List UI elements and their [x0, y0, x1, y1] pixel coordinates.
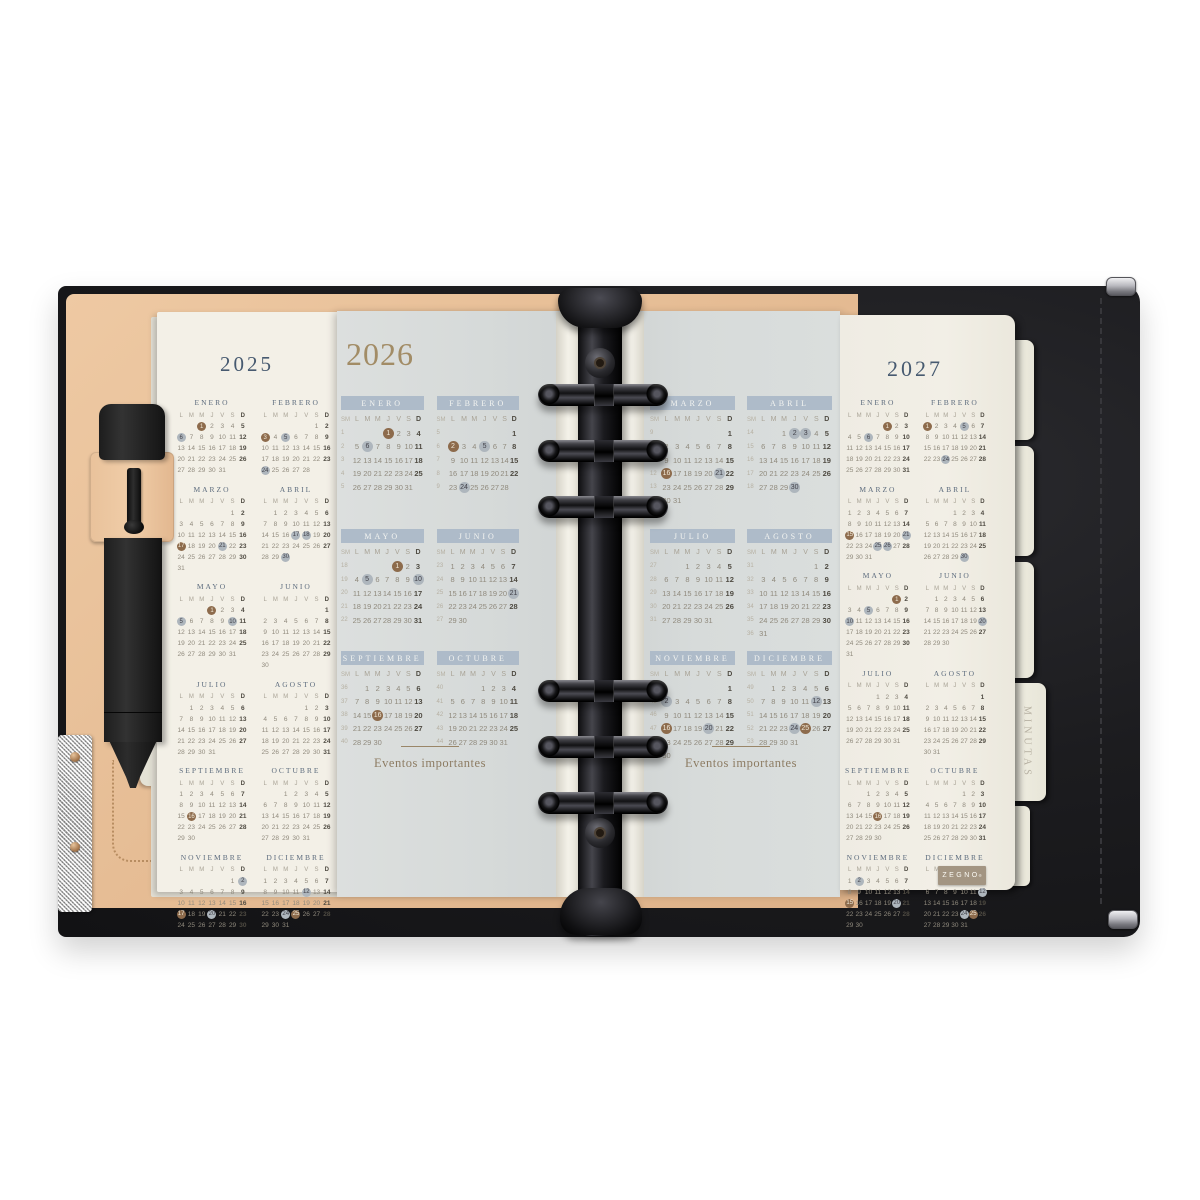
day-cell: 17	[301, 812, 311, 822]
binder-ring[interactable]	[538, 440, 668, 462]
day-cell: 24	[864, 542, 873, 552]
weekday-label: M	[682, 547, 693, 559]
day-cell: 22	[950, 542, 959, 552]
day-cell: 1	[509, 428, 519, 440]
day-cell: 25	[714, 601, 725, 613]
day-cell: 29	[186, 748, 196, 758]
observance-day: 2	[789, 428, 800, 439]
day-cell: 2	[270, 877, 280, 887]
weekday-label: V	[960, 584, 969, 594]
day-cell: 12	[901, 801, 910, 811]
day-cell: 8	[509, 441, 519, 453]
week-number: 21	[341, 601, 352, 613]
day-cell	[238, 564, 248, 574]
day-cell	[932, 693, 941, 703]
weekday-label: M	[186, 595, 196, 605]
day-cell	[238, 748, 248, 758]
day-cell: 18	[291, 899, 301, 909]
weekday-label: L	[845, 779, 854, 789]
day-cell: 2	[821, 561, 832, 573]
day-cell: 23	[488, 723, 498, 735]
day-cell: 18	[873, 531, 882, 541]
day-cell	[779, 628, 790, 640]
weekday-label: M	[932, 779, 941, 789]
day-cell: 7	[373, 441, 383, 453]
week-number: 36	[747, 628, 758, 640]
day-cell: 7	[864, 704, 873, 714]
weekday-label: D	[978, 682, 987, 692]
day-cell: 3	[383, 683, 393, 695]
day-cell: 19	[176, 639, 186, 649]
day-cell	[873, 921, 882, 931]
week-number: 46	[650, 710, 661, 722]
day-cell: 12	[693, 455, 703, 467]
weekday-label: M	[186, 779, 196, 789]
day-cell: 12	[479, 455, 490, 467]
week-number: 14	[747, 428, 758, 440]
day-cell: 17	[176, 910, 186, 920]
month-grid: LMMJVSD123456789101112131415161718192021…	[845, 498, 911, 563]
weekday-label: L	[845, 584, 854, 594]
day-cell	[883, 553, 892, 563]
day-cell: 22	[478, 723, 488, 735]
day-cell: 4	[270, 433, 280, 443]
day-cell: 13	[291, 444, 301, 454]
day-cell: 26	[488, 601, 498, 613]
week-number: 23	[437, 561, 448, 573]
day-cell: 8	[383, 441, 394, 453]
observance-day: 20	[207, 910, 216, 919]
day-cell: 4	[470, 441, 480, 453]
day-cell: 23	[932, 455, 941, 465]
day-cell: 31	[176, 564, 186, 574]
day-cell: 28	[373, 482, 383, 494]
day-cell: 6	[311, 877, 321, 887]
calendar-month-mayo: MAYOLMMJVSD12345678910111213141516171819…	[176, 582, 248, 671]
weekday-label: S	[227, 411, 237, 421]
day-cell: 7	[758, 696, 768, 708]
month-grid: LMMJVSD123456789101112131415161718192021…	[845, 779, 911, 844]
day-cell: 26	[901, 823, 910, 833]
month-name: ABRIL	[923, 485, 987, 494]
day-cell: 10	[260, 444, 270, 454]
day-cell: 6	[362, 441, 373, 453]
weekday-label: S	[227, 779, 237, 789]
day-cell: 31	[281, 921, 291, 931]
day-cell: 24	[800, 468, 811, 480]
month-grid: LMMJVSD123456789101112131415161718192021…	[845, 411, 911, 476]
day-cell: 2	[458, 561, 468, 573]
day-cell: 31	[901, 466, 910, 476]
day-cell: 30	[693, 615, 704, 627]
day-cell: 19	[479, 468, 490, 480]
day-cell: 1	[281, 790, 291, 800]
day-cell: 18	[301, 531, 311, 541]
month-grid: LMMJVSD123456789101112131415161718192021…	[260, 779, 332, 844]
binder-ring[interactable]	[538, 680, 668, 702]
day-cell: 30	[854, 553, 863, 563]
day-cell: 31	[845, 650, 854, 660]
observance-day: 6	[362, 441, 373, 452]
day-cell	[301, 606, 311, 616]
day-cell: 14	[500, 455, 510, 467]
day-cell: 18	[238, 628, 248, 638]
day-cell: 5	[960, 422, 969, 432]
day-cell: 19	[301, 899, 311, 909]
observance-day: 10	[413, 574, 424, 585]
month-grid: LMMJVSD123456789101112131415161718192021…	[845, 682, 911, 747]
day-cell: 5	[322, 790, 332, 800]
weekday-label: L	[260, 866, 270, 876]
day-cell	[854, 595, 863, 605]
day-cell: 8	[883, 433, 892, 443]
week-number: 49	[747, 683, 758, 695]
weekday-label: V	[703, 414, 713, 426]
day-cell: 1	[176, 790, 186, 800]
day-cell: 17	[800, 455, 811, 467]
day-cell: 14	[873, 444, 882, 454]
day-cell: 21	[217, 910, 227, 920]
day-cell: 25	[960, 628, 969, 638]
day-cell: 8	[362, 696, 372, 708]
day-cell	[197, 834, 207, 844]
day-cell	[672, 428, 682, 440]
day-cell: 7	[322, 877, 332, 887]
weekday-label: S	[311, 866, 321, 876]
day-cell: 26	[779, 615, 790, 627]
day-cell	[901, 737, 910, 747]
day-cell: 1	[270, 509, 280, 519]
observance-day: 26	[883, 542, 892, 551]
day-cell: 4	[217, 704, 227, 714]
day-cell: 1	[845, 509, 854, 519]
observance-day: 30	[789, 482, 800, 493]
weekday-label: V	[392, 547, 403, 559]
day-cell: 8	[978, 704, 987, 714]
month-grid: SMLMMJVSD1123425678910113121314151617184…	[341, 414, 424, 493]
binder-ring[interactable]	[538, 792, 668, 814]
day-cell: 18	[682, 723, 692, 735]
week-number: 26	[437, 601, 448, 613]
day-cell: 9	[217, 617, 227, 627]
month-name: OCTUBRE	[923, 766, 987, 775]
day-cell: 10	[301, 801, 311, 811]
day-cell	[768, 428, 778, 440]
weeknum-header: SM	[747, 547, 758, 559]
holiday-day: 25	[800, 723, 811, 734]
calendar-month-febrero: FEBREROLMMJVSD12345678910111213141516171…	[923, 398, 987, 476]
day-cell: 20	[892, 531, 901, 541]
day-cell	[864, 595, 873, 605]
month-name: SEPTIEMBRE	[341, 651, 424, 665]
day-cell	[217, 509, 227, 519]
day-cell: 9	[789, 441, 800, 453]
day-cell: 15	[260, 899, 270, 909]
day-cell: 8	[281, 801, 291, 811]
day-cell: 15	[311, 444, 321, 454]
observance-day: 24	[960, 910, 969, 919]
calendar-month-septiembre: SEPTIEMBRELMMJVSD12345678910111213141516…	[176, 766, 248, 844]
month-name: SEPTIEMBRE	[845, 766, 911, 775]
week-number: 7	[437, 455, 448, 467]
day-cell	[197, 606, 207, 616]
day-cell: 16	[960, 531, 969, 541]
day-cell: 24	[270, 650, 280, 660]
calendar-month-octubre: OCTUBRELMMJVSD12345678910111213141516171…	[923, 766, 987, 844]
day-cell: 20	[238, 726, 248, 736]
day-cell: 19	[362, 601, 373, 613]
observance-day: 5	[864, 606, 873, 615]
day-cell: 20	[790, 601, 801, 613]
day-cell: 3	[322, 704, 332, 714]
day-cell: 16	[932, 444, 941, 454]
day-cell	[923, 877, 932, 887]
day-cell: 24	[960, 910, 969, 920]
day-cell: 20	[490, 468, 500, 480]
day-cell: 19	[822, 455, 832, 467]
binder-ring[interactable]	[538, 496, 668, 518]
day-cell: 30	[186, 834, 196, 844]
day-cell: 8	[227, 520, 237, 530]
day-cell: 7	[800, 574, 811, 586]
metal-pin-bottom-icon	[1108, 910, 1138, 929]
holiday-day: 25	[969, 910, 978, 919]
day-cell	[682, 683, 692, 695]
day-cell	[311, 921, 321, 931]
weekday-label: L	[758, 414, 768, 426]
weekday-label: D	[724, 547, 735, 559]
day-cell: 15	[873, 715, 882, 725]
day-cell: 28	[941, 553, 950, 563]
day-cell: 28	[270, 834, 280, 844]
weekday-label: M	[281, 411, 291, 421]
day-cell: 27	[301, 650, 311, 660]
day-cell: 1	[186, 704, 196, 714]
day-cell: 30	[207, 466, 217, 476]
day-cell: 4	[414, 428, 424, 440]
day-cell: 6	[281, 715, 291, 725]
day-cell: 25	[901, 726, 910, 736]
month-name: OCTUBRE	[260, 766, 332, 775]
week-number: 12	[650, 468, 661, 480]
day-cell: 29	[779, 482, 789, 494]
day-cell: 12	[403, 696, 413, 708]
day-cell: 29	[383, 482, 394, 494]
day-cell	[207, 877, 217, 887]
day-cell	[448, 428, 459, 440]
day-cell: 15	[725, 455, 735, 467]
observance-day: 24	[789, 723, 800, 734]
weekday-label: J	[693, 414, 703, 426]
weekday-label: L	[352, 414, 362, 426]
month-grid: LMMJVSD123456789101112131415161718192021…	[176, 595, 248, 660]
day-cell: 10	[499, 696, 509, 708]
day-cell: 15	[932, 617, 941, 627]
day-cell: 6	[207, 888, 217, 898]
weeknum-header: SM	[650, 414, 661, 426]
weekday-label: V	[883, 498, 892, 508]
day-cell	[311, 466, 321, 476]
day-cell: 9	[923, 715, 932, 725]
day-cell: 7	[950, 801, 959, 811]
day-cell	[950, 790, 959, 800]
day-cell	[960, 639, 969, 649]
day-cell: 25	[873, 542, 882, 552]
day-cell	[978, 748, 987, 758]
weekday-label: M	[941, 779, 950, 789]
day-cell	[217, 877, 227, 887]
day-cell: 31	[703, 615, 714, 627]
day-cell	[458, 683, 468, 695]
weekday-label: M	[854, 498, 863, 508]
day-cell: 8	[725, 696, 735, 708]
day-cell: 5	[479, 441, 490, 453]
weekday-label: M	[362, 669, 372, 681]
month-grid: LMMJVSD123456789101112131415161718192021…	[176, 498, 248, 574]
weekday-label: J	[207, 498, 217, 508]
day-cell: 27	[703, 482, 713, 494]
day-cell: 1	[478, 683, 488, 695]
day-cell: 19	[969, 617, 978, 627]
month-grid: LMMJVSD123456789101112131415161718192021…	[923, 411, 987, 465]
holiday-day: 1	[392, 561, 403, 572]
day-cell: 9	[854, 520, 863, 530]
day-cell: 8	[682, 574, 693, 586]
day-cell: 24	[383, 723, 393, 735]
day-cell: 21	[758, 723, 768, 735]
weekday-label: M	[672, 414, 682, 426]
day-cell	[901, 650, 910, 660]
observance-day: 6	[864, 433, 873, 442]
day-cell: 30	[238, 921, 248, 931]
day-cell: 23	[789, 468, 800, 480]
day-cell: 25	[270, 466, 280, 476]
day-cell: 3	[864, 509, 873, 519]
day-cell: 18	[281, 639, 291, 649]
day-cell	[291, 704, 301, 714]
day-cell: 19	[448, 723, 458, 735]
weekday-label: J	[291, 411, 301, 421]
day-cell: 28	[901, 542, 910, 552]
day-cell: 22	[768, 723, 778, 735]
day-cell: 27	[854, 737, 863, 747]
day-cell: 7	[217, 520, 227, 530]
day-cell: 12	[923, 531, 932, 541]
calendar-grid-2026-left: ENEROSMLMMJVSD11234256789101131213141516…	[341, 396, 519, 748]
day-cell: 19	[311, 531, 321, 541]
day-cell: 11	[301, 520, 311, 530]
week-number: 5	[341, 482, 352, 494]
day-cell	[821, 628, 832, 640]
day-cell: 14	[217, 531, 227, 541]
day-cell: 9	[270, 888, 280, 898]
day-cell: 3	[207, 704, 217, 714]
day-cell: 27	[322, 542, 332, 552]
day-cell: 7	[941, 520, 950, 530]
weekday-label: M	[281, 866, 291, 876]
day-cell	[500, 428, 510, 440]
day-cell: 6	[238, 704, 248, 714]
day-cell: 27	[238, 737, 248, 747]
day-cell	[978, 921, 987, 931]
day-cell: 14	[322, 888, 332, 898]
month-name: AGOSTO	[923, 669, 987, 678]
day-cell: 30	[403, 615, 413, 627]
day-cell	[892, 921, 901, 931]
day-cell	[811, 628, 822, 640]
day-cell: 28	[950, 834, 959, 844]
weekday-label: S	[311, 779, 321, 789]
day-cell: 2	[281, 509, 291, 519]
day-cell: 18	[207, 812, 217, 822]
day-cell: 12	[291, 628, 301, 638]
weekday-label: L	[176, 498, 186, 508]
holiday-day: 1	[197, 422, 206, 431]
day-cell: 24	[281, 910, 291, 920]
day-cell: 14	[197, 628, 207, 638]
day-cell: 20	[854, 726, 863, 736]
weekday-label: M	[854, 584, 863, 594]
day-cell: 7	[854, 801, 863, 811]
day-cell: 5	[281, 433, 291, 443]
ring-mechanism-plate-bottom	[560, 888, 642, 935]
day-cell: 17	[892, 715, 901, 725]
observance-day: 30	[960, 553, 969, 562]
day-cell: 12	[845, 715, 854, 725]
weekday-label: S	[227, 866, 237, 876]
month-grid: LMMJVSD123456789101112131415161718192021…	[923, 682, 987, 758]
day-cell: 28	[260, 553, 270, 563]
day-cell: 5	[845, 704, 854, 714]
binder-ring[interactable]	[538, 736, 668, 758]
day-cell: 21	[270, 823, 280, 833]
day-cell: 4	[186, 520, 196, 530]
day-cell: 12	[488, 574, 498, 586]
day-cell	[883, 921, 892, 931]
day-cell: 23	[892, 455, 901, 465]
week-number: 35	[747, 615, 758, 627]
day-cell: 16	[281, 531, 291, 541]
day-cell: 12	[217, 801, 227, 811]
day-cell: 28	[301, 466, 311, 476]
day-cell: 6	[227, 790, 237, 800]
cover-stitching	[1100, 298, 1102, 904]
weekday-label: M	[768, 669, 778, 681]
day-cell: 9	[260, 628, 270, 638]
weeknum-header: SM	[747, 414, 758, 426]
day-cell: 1	[197, 422, 207, 432]
day-cell: 2	[217, 606, 227, 616]
day-cell: 5	[779, 574, 790, 586]
day-cell: 21	[197, 639, 207, 649]
day-cell: 14	[301, 444, 311, 454]
day-cell: 23	[448, 482, 459, 494]
day-cell: 29	[281, 834, 291, 844]
day-cell: 6	[498, 561, 508, 573]
day-cell: 20	[822, 710, 832, 722]
day-cell: 5	[854, 433, 863, 443]
month-name: ENERO	[176, 398, 248, 407]
weekday-label: L	[923, 584, 932, 594]
day-cell: 10	[758, 588, 769, 600]
day-cell: 13	[362, 455, 373, 467]
day-cell: 3	[227, 606, 237, 616]
day-cell: 16	[779, 710, 789, 722]
day-cell: 29	[301, 748, 311, 758]
day-cell: 7	[352, 696, 362, 708]
binder-ring[interactable]	[538, 384, 668, 406]
day-cell: 24	[883, 823, 892, 833]
